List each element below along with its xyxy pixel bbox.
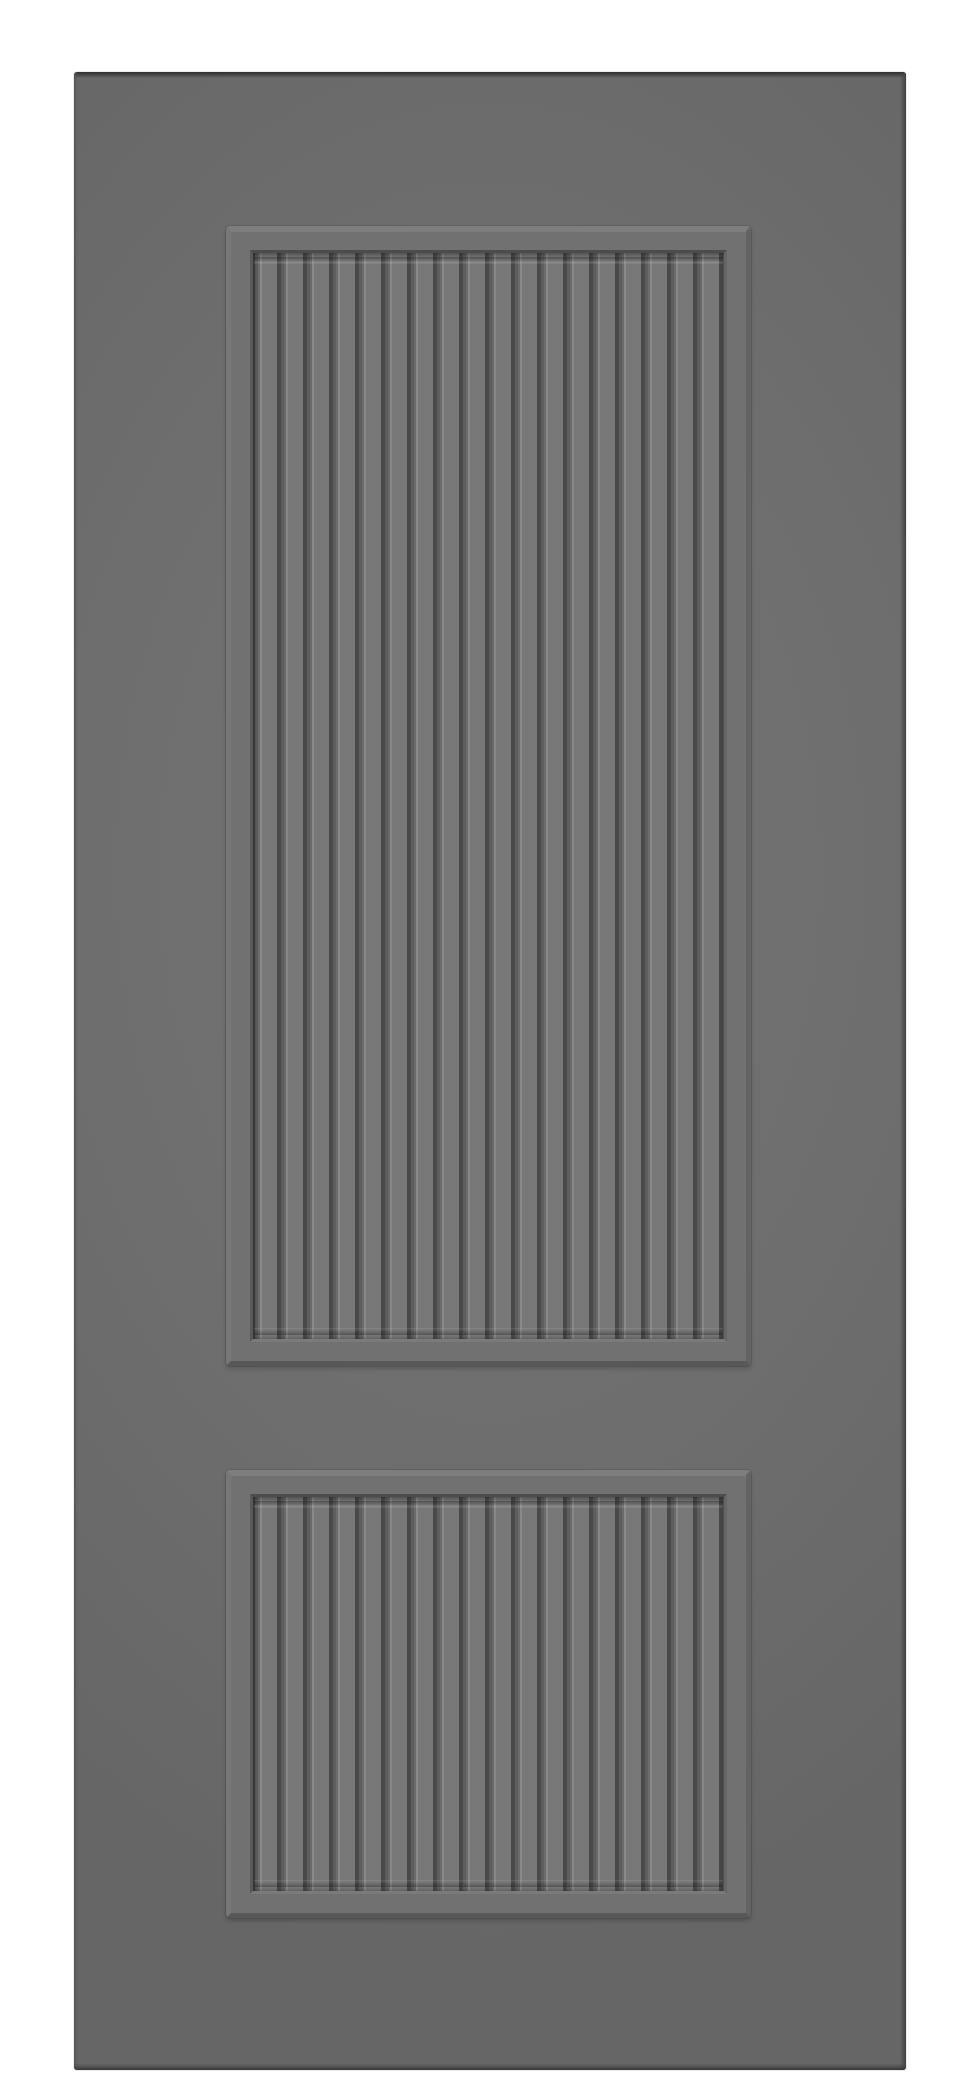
upper-panel-bottom-channel: [254, 1328, 723, 1335]
lower-panel-top-channel: [254, 1501, 723, 1508]
door-slab: [74, 72, 906, 2070]
lower-panel-bottom-channel: [254, 1880, 723, 1887]
door-right-edge: [900, 72, 906, 2070]
product-image-canvas: [0, 0, 980, 2100]
door-bottom-edge: [74, 2063, 906, 2070]
door-lower-panel: [226, 1470, 751, 1918]
upper-panel-top-channel: [254, 257, 723, 264]
lower-panel-recess-frame: [250, 1494, 727, 1894]
upper-panel-recess-frame: [250, 250, 727, 1342]
lower-panel-fluted-field: [253, 1497, 724, 1891]
door-top-edge: [74, 72, 906, 78]
door-left-edge: [74, 72, 78, 2070]
upper-panel-fluted-field: [253, 253, 724, 1339]
door-upper-panel: [226, 226, 751, 1366]
